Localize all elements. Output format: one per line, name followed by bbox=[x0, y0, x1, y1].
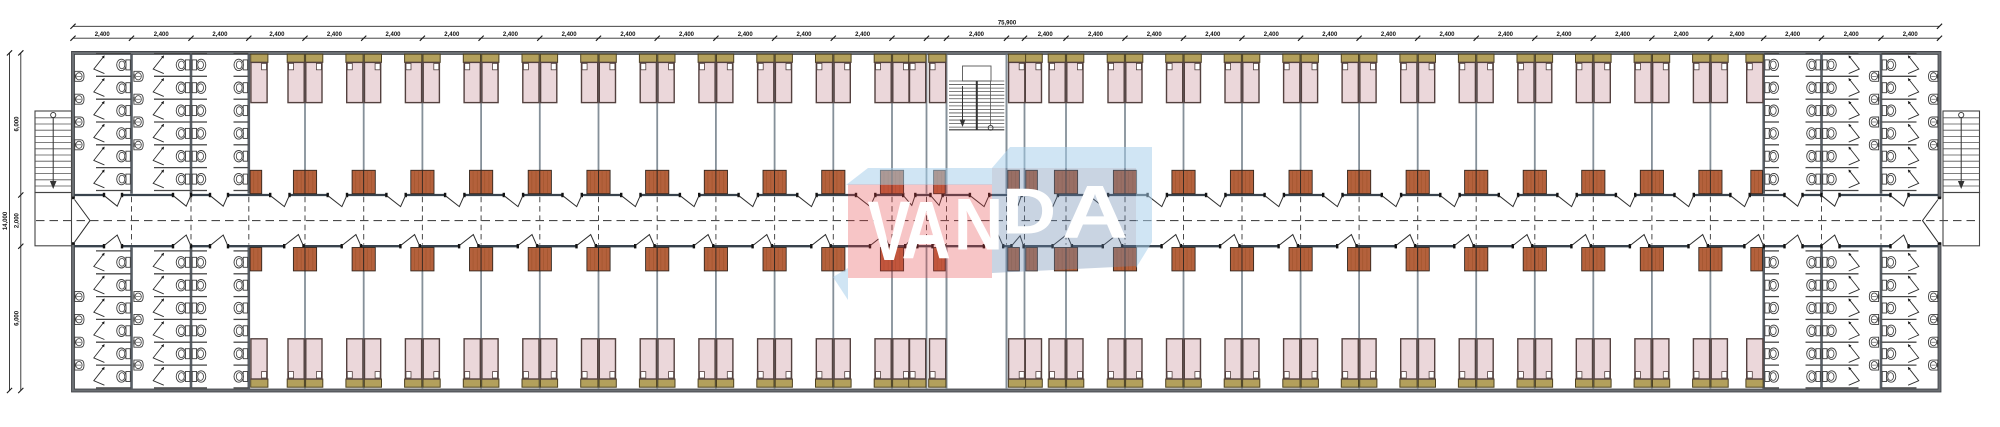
svg-text:2,400: 2,400 bbox=[1674, 32, 1690, 38]
svg-text:2,400: 2,400 bbox=[1439, 32, 1455, 38]
svg-text:75,900: 75,900 bbox=[998, 21, 1017, 27]
svg-text:2,400: 2,400 bbox=[444, 32, 460, 38]
svg-text:2,400: 2,400 bbox=[1556, 32, 1572, 38]
svg-text:2,400: 2,400 bbox=[269, 32, 285, 38]
svg-text:2,400: 2,400 bbox=[1264, 32, 1280, 38]
svg-text:2,400: 2,400 bbox=[562, 32, 578, 38]
svg-text:2,400: 2,400 bbox=[1205, 32, 1221, 38]
svg-text:2,400: 2,400 bbox=[1088, 32, 1104, 38]
svg-text:2,400: 2,400 bbox=[1038, 32, 1054, 38]
svg-text:A: A bbox=[902, 185, 951, 276]
svg-text:2,400: 2,400 bbox=[1147, 32, 1163, 38]
svg-text:2,400: 2,400 bbox=[95, 32, 111, 38]
svg-text:2,400: 2,400 bbox=[503, 32, 519, 38]
svg-text:D: D bbox=[1002, 175, 1056, 247]
svg-text:2,400: 2,400 bbox=[1844, 32, 1860, 38]
svg-text:2,400: 2,400 bbox=[738, 32, 754, 38]
svg-text:2,400: 2,400 bbox=[1322, 32, 1338, 38]
svg-text:6,000: 6,000 bbox=[15, 116, 21, 132]
svg-text:2,400: 2,400 bbox=[855, 32, 871, 38]
svg-text:A: A bbox=[1062, 169, 1129, 253]
svg-text:2,400: 2,400 bbox=[1730, 32, 1746, 38]
svg-text:2,400: 2,400 bbox=[1615, 32, 1631, 38]
svg-text:2,400: 2,400 bbox=[620, 32, 636, 38]
svg-text:2,000: 2,000 bbox=[15, 212, 21, 228]
svg-text:2,400: 2,400 bbox=[679, 32, 695, 38]
svg-text:2,400: 2,400 bbox=[385, 32, 401, 38]
svg-text:2,400: 2,400 bbox=[154, 32, 170, 38]
svg-text:2,400: 2,400 bbox=[327, 32, 343, 38]
svg-text:2,400: 2,400 bbox=[969, 32, 985, 38]
svg-text:2,400: 2,400 bbox=[1381, 32, 1397, 38]
svg-text:2,400: 2,400 bbox=[212, 32, 228, 38]
svg-text:2,400: 2,400 bbox=[1903, 32, 1919, 38]
svg-text:2,400: 2,400 bbox=[1785, 32, 1801, 38]
svg-text:14,000: 14,000 bbox=[3, 211, 9, 230]
svg-text:6,000: 6,000 bbox=[15, 310, 21, 326]
svg-text:2,400: 2,400 bbox=[796, 32, 812, 38]
svg-text:2,400: 2,400 bbox=[1498, 32, 1514, 38]
svg-text:N: N bbox=[954, 185, 1004, 266]
